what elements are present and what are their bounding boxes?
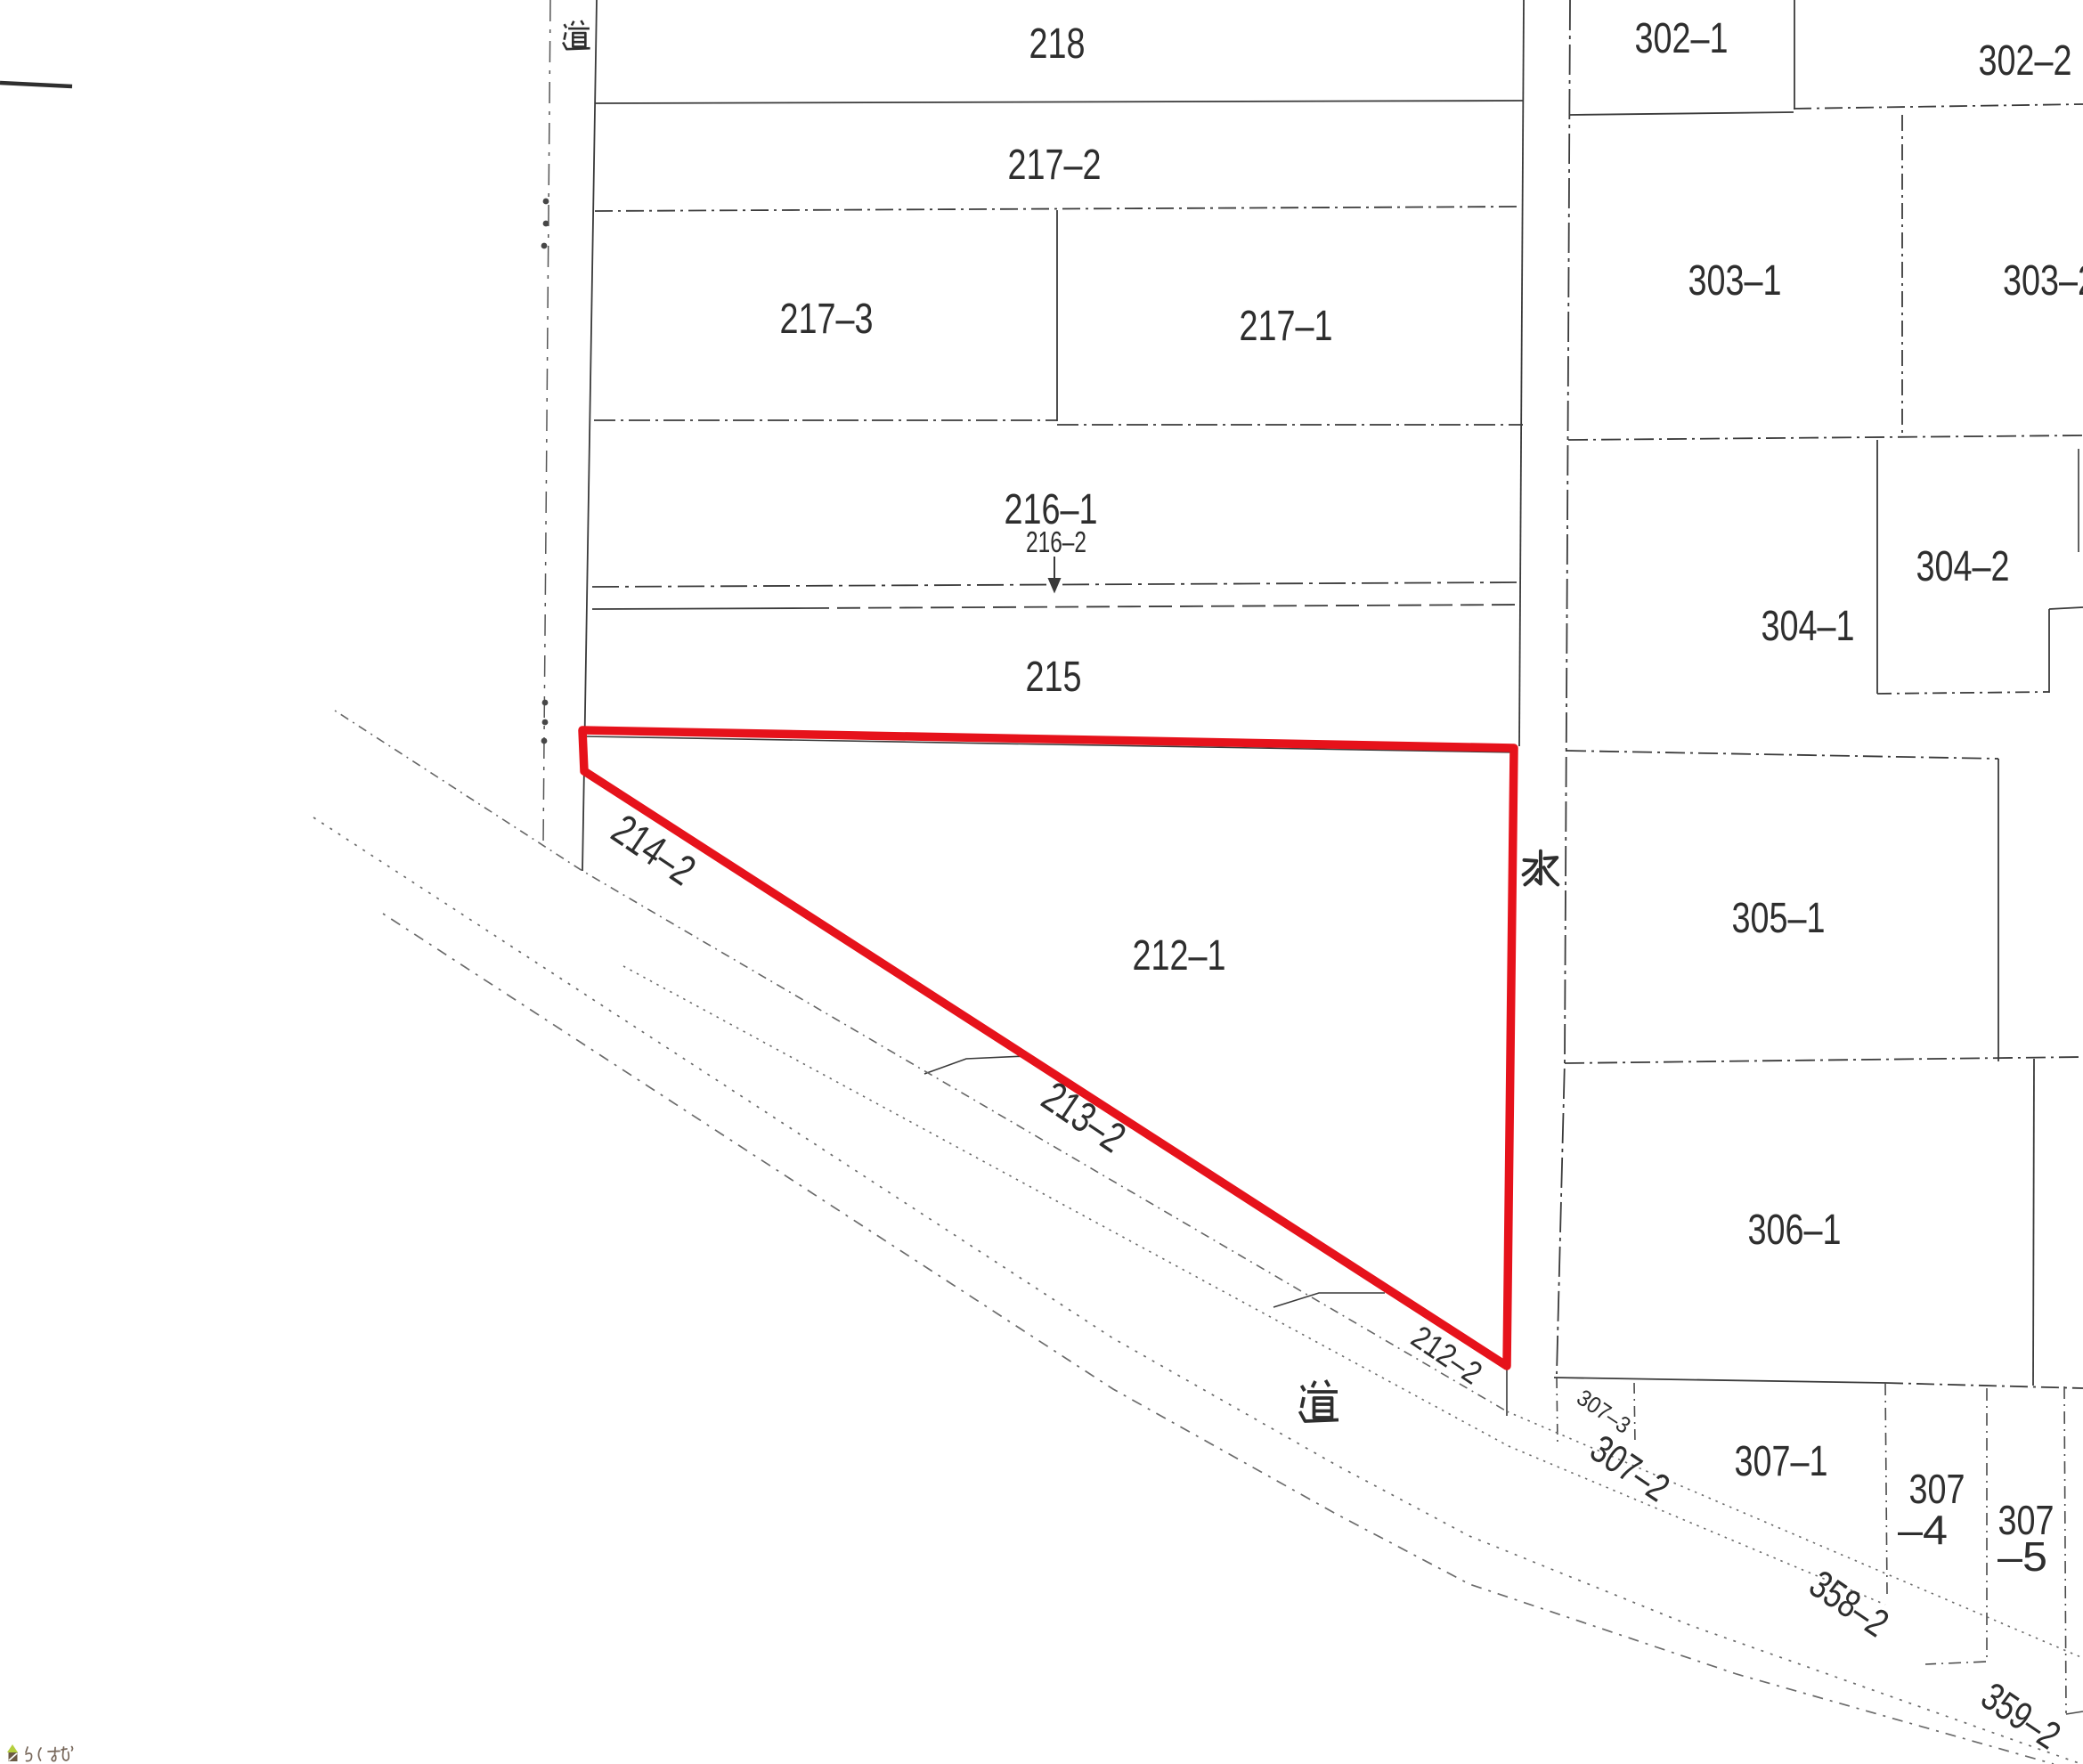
svg-text:218: 218 — [1029, 20, 1086, 68]
svg-text:303–2: 303–2 — [2003, 257, 2083, 305]
svg-text:307–1: 307–1 — [1735, 1438, 1828, 1485]
svg-text:217–1: 217–1 — [1240, 303, 1333, 350]
svg-text:302–2: 302–2 — [1979, 37, 2072, 85]
svg-text:305–1: 305–1 — [1732, 895, 1826, 942]
svg-text:217–2: 217–2 — [1008, 142, 1102, 189]
svg-text:–5: –5 — [1998, 1533, 2047, 1580]
svg-text:304–2: 304–2 — [1916, 543, 2010, 590]
svg-text:217–3: 217–3 — [780, 296, 874, 343]
svg-text:307: 307 — [1909, 1466, 1965, 1512]
svg-text:304–1: 304–1 — [1762, 603, 1855, 650]
svg-text:212–1: 212–1 — [1133, 932, 1226, 980]
svg-text:215: 215 — [1026, 654, 1082, 701]
svg-text:303–1: 303–1 — [1688, 257, 1782, 305]
svg-text:–4: –4 — [1898, 1507, 1948, 1553]
svg-text:306–1: 306–1 — [1748, 1207, 1842, 1254]
svg-text:216–2: 216–2 — [1026, 525, 1086, 558]
svg-text:302–1: 302–1 — [1635, 15, 1729, 62]
